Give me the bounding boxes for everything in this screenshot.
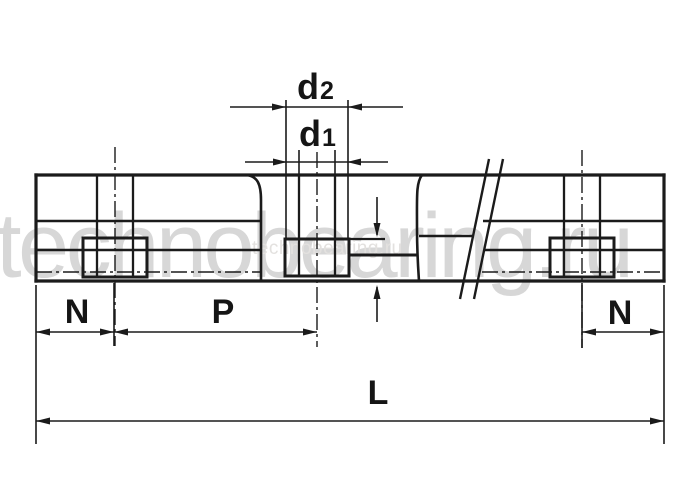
- p-label: P: [212, 293, 235, 331]
- l-label: L: [368, 374, 389, 412]
- d2-label: d2: [297, 66, 334, 107]
- technical-drawing-page: technobearing.ru technobearing.ru: [0, 0, 700, 500]
- dimension-d2: d2: [230, 66, 403, 111]
- dimension-n-right: N: [582, 294, 664, 336]
- dimension-n-left: N: [36, 293, 114, 336]
- n-right-label: N: [608, 294, 633, 332]
- n-left-label: N: [65, 293, 90, 331]
- dimension-l: L: [36, 374, 664, 425]
- linear-rail-technical-drawing: technobearing.ru technobearing.ru: [0, 0, 700, 500]
- dimension-p: P: [114, 293, 317, 336]
- d1-label: d1: [299, 113, 336, 154]
